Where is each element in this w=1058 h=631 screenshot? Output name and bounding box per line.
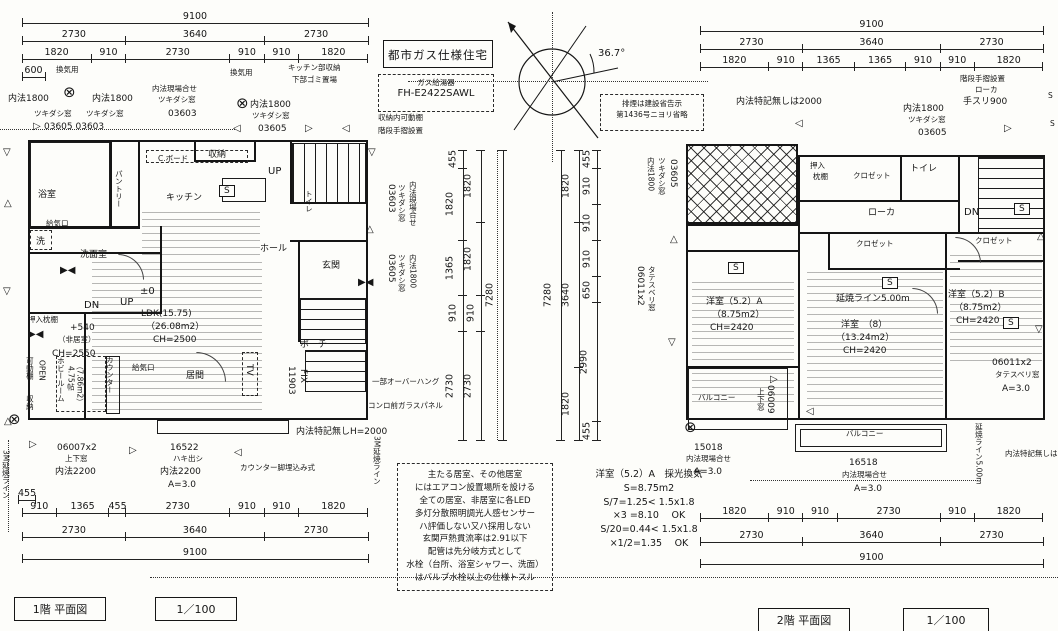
dim-value: 2730 — [700, 37, 803, 48]
general-note-line: 配管は先分岐方式として — [400, 546, 550, 559]
dim-value: 3640 — [560, 283, 571, 307]
plan-shape — [552, 12, 553, 162]
window-symbol-icon: ▽ — [3, 286, 11, 297]
plan-label: DN — [84, 300, 99, 311]
dimension-chain: 9100 — [700, 18, 1043, 32]
title-1f: 1階 平面図 — [14, 597, 106, 621]
window-symbol-icon: ▶◀ — [60, 265, 75, 276]
plan-label: クロゼット — [853, 172, 891, 180]
dim-value: 2730 — [126, 501, 230, 512]
plan-label: 浴室 — [38, 190, 56, 200]
dim-value: 1820 — [974, 506, 1043, 517]
dim-value: 910 — [769, 506, 803, 517]
bathroom — [30, 142, 110, 228]
dimension-chain: 273036402730 — [22, 28, 368, 42]
plan-label: ±0 — [140, 286, 155, 297]
dim-value: 910 — [447, 304, 458, 322]
gas-spec-box: 都市ガス仕様住宅 — [383, 40, 493, 68]
general-note-line: はバルブ水栓以上の仕様トスル — [400, 572, 550, 585]
window-symbol-icon: ▽ — [668, 337, 676, 348]
window-symbol-icon: ▽ — [1035, 324, 1043, 335]
dim-value: 2730 — [837, 506, 940, 517]
stairs-2f — [978, 157, 1044, 233]
dim-value: 2730 — [22, 29, 126, 40]
window-symbol-icon: △ — [4, 198, 12, 209]
plan-label: 洗面室 — [80, 250, 107, 260]
window-symbol-icon: △ — [670, 234, 678, 245]
shutter-box-label: S — [1003, 317, 1019, 329]
plan-label: 収納 — [208, 150, 226, 160]
plan-label: 下部ゴミ置場 — [292, 76, 337, 84]
dimension-chain: 9100 — [22, 10, 368, 24]
plan-label: 内法1800 — [646, 157, 654, 191]
plan-label: （8.75m2） — [712, 310, 765, 320]
dim-value: 910 — [581, 213, 592, 231]
dim-value: 1820 — [299, 501, 368, 512]
general-note-line: ハ評価しない又ハ採用しない — [400, 521, 550, 534]
plan-shape — [150, 577, 1058, 578]
plan-label: 06011x2 — [635, 266, 645, 306]
plan-label: 03605 — [668, 159, 678, 188]
dim-value: 2730 — [264, 29, 368, 40]
plan-shape — [28, 226, 140, 229]
plan-label: クロゼット — [856, 240, 894, 248]
plan-label: ハキ出シ — [173, 455, 203, 463]
plan-label: 内法2200 — [160, 467, 201, 477]
corner-marker-icon: ⊗ — [684, 420, 697, 435]
general-note-line: 多灯分散照明調光人感センサー — [400, 508, 550, 521]
shutter-box-label: S — [1014, 203, 1030, 215]
dim-value: 1820 — [444, 192, 455, 216]
window-symbol-icon: ▷ — [129, 445, 137, 456]
plan-label: 給気口 — [132, 364, 155, 372]
dim-value: 1365 — [854, 55, 905, 66]
dim-value: 910 — [465, 304, 476, 322]
plan-label: 手スリ900 — [963, 97, 1007, 107]
plan-label: 階段手摺設置 — [960, 75, 1005, 83]
plan-shape — [828, 234, 830, 270]
plan-label: パントリー — [114, 170, 122, 208]
window-symbol-icon: ▷ — [33, 121, 41, 132]
plan-label: 給気口 — [46, 220, 69, 228]
dimension-chain: 182091091027309101820 — [700, 505, 1043, 519]
plan-label: 内法現場合せ — [152, 85, 197, 93]
plan-label: CH=2420 — [710, 323, 754, 333]
plan-shape — [290, 240, 368, 242]
plan-label: 03605 — [918, 128, 947, 138]
window-symbol-icon: ▽ — [3, 147, 11, 158]
dim-value: 9100 — [22, 11, 368, 22]
dim-value: 3640 — [126, 525, 264, 536]
plan-label: 玄関 — [322, 261, 340, 271]
plan-label: （非居室） — [58, 336, 96, 344]
plan-shape — [138, 142, 140, 228]
scale-1f-text: 1／100 — [177, 603, 216, 616]
plan-label: 11903 — [286, 366, 296, 395]
shutter-box-label: S — [728, 262, 744, 274]
plan-label: 洋室（5.2）A — [706, 297, 762, 307]
title-2f-text: 2階 平面図 — [777, 614, 832, 627]
plan-label: S — [1050, 120, 1055, 128]
plan-label: 内法特記無しは — [1005, 450, 1058, 458]
plan-shape — [958, 155, 960, 234]
north-angle: 36.7° — [598, 48, 625, 59]
plan-label: 階段手摺設置 — [378, 127, 423, 135]
plan-label: 4.75帖 — [66, 366, 74, 390]
plan-label: C.ボード — [158, 155, 188, 163]
plan-label: +540 — [70, 323, 95, 333]
plan-label: （13.24m2） — [836, 333, 894, 343]
title-2f: 2階 平面図 — [758, 608, 850, 631]
plan-label: 押入 — [810, 162, 825, 170]
plan-label: 上下窓 — [756, 388, 764, 411]
dimension-chain: 4559109109106502990455 — [584, 150, 598, 440]
plan-label: （8.75m2） — [954, 303, 1007, 313]
plan-label: A=3.0 — [168, 480, 196, 490]
plan-label: 上下窓 — [65, 455, 88, 463]
plan-label: 可動棚 — [25, 357, 33, 380]
plan-label: カウンター脚埋込み式 — [240, 464, 315, 472]
roof-hatch — [686, 144, 798, 224]
dim-value: 1820 — [560, 174, 571, 198]
plan-label: 内法現場合せ — [842, 471, 887, 479]
plan-label: 洋室（5.2）B — [948, 290, 1005, 300]
plan-label: 03605 03603 — [44, 122, 104, 132]
plan-label: 03603 — [168, 109, 197, 119]
dim-value: 910 — [581, 177, 592, 195]
dim-value: 455 — [447, 150, 458, 168]
dimension-chain: 9100 — [22, 546, 368, 560]
plan-label: 03605 — [258, 124, 287, 134]
dim-value: 910 — [940, 55, 974, 66]
dining-floor — [142, 212, 260, 258]
plan-label: ローカ — [975, 86, 998, 94]
plan-label: ツキダシ窓 — [908, 116, 946, 124]
general-note-line: 全ての居室、非居室に各LED — [400, 495, 550, 508]
plan-label: 03603 — [386, 184, 396, 213]
dim-value: 7280 — [542, 283, 553, 307]
plan-label: 15018 — [694, 443, 723, 453]
dim-value: 1820 — [462, 247, 473, 271]
dimension-chain: 182018209102730 — [468, 150, 482, 440]
plan-label: FIX — [298, 369, 308, 383]
plan-label: ホール — [260, 244, 287, 254]
plan-label: （26.08m2） — [146, 322, 204, 332]
plan-label: A=3.0 — [1002, 384, 1030, 394]
plan-shape — [290, 142, 292, 204]
dim-value: 1365 — [803, 55, 854, 66]
dim-value: 910 — [264, 47, 299, 58]
window-symbol-icon: △ — [366, 224, 374, 235]
plan-label: 押入枕棚 — [28, 316, 58, 324]
dim-value: 1820 — [974, 55, 1043, 66]
window-symbol-icon: ◁ — [233, 123, 241, 134]
deck — [157, 420, 289, 434]
plan-label: 16522 — [170, 443, 199, 453]
dim-value: 910 — [230, 501, 265, 512]
plan-shape — [686, 366, 800, 368]
plan-label: CH=2420 — [956, 316, 1000, 326]
plan-shape — [254, 142, 256, 162]
window-symbol-icon: ▷ — [770, 374, 778, 385]
dim-value: 3640 — [803, 530, 940, 541]
dim-value: 3640 — [126, 29, 264, 40]
dim-value: 910 — [803, 506, 837, 517]
plan-label: 居間 — [186, 371, 204, 381]
plan-label: ツキダシ窓 — [34, 110, 72, 118]
dim-value: 650 — [581, 281, 592, 299]
north-compass-icon — [494, 12, 624, 152]
plan-label: 延焼ライン5.00m — [974, 423, 982, 485]
window-symbol-icon: ▶◀ — [358, 277, 373, 288]
plan-label: UP — [120, 297, 133, 308]
plan-label: 3M延焼ライン — [372, 436, 380, 485]
dim-value: 1820 — [299, 47, 368, 58]
floor-plan-sheet: 都市ガス仕様住宅 ガス給湯器 FH-E2422SAWL 排煙は建設省告示 第14… — [0, 0, 1058, 631]
heater-title: ガス給湯器 — [379, 77, 493, 88]
dim-value: 910 — [91, 47, 126, 58]
plan-label: キッチン — [166, 193, 202, 203]
dim-value: 910 — [230, 47, 265, 58]
window-symbol-icon: ◁ — [234, 447, 242, 458]
plan-label: UP — [268, 166, 281, 177]
plan-label: 洗 — [36, 237, 45, 247]
dim-value: 455 — [581, 150, 592, 168]
dim-value: 2730 — [462, 374, 473, 398]
plan-label: コンロ前ガラスパネル — [368, 402, 443, 410]
dim-value: 1820 — [22, 47, 91, 58]
dimension-chain: 273036402730 — [700, 36, 1043, 50]
window-symbol-icon: ▷ — [305, 123, 313, 134]
shutter-box-label: S — [219, 185, 235, 197]
plan-label: 一部オーバーハング — [372, 378, 439, 386]
plan-label: 内法1800 — [408, 254, 416, 288]
dim-value: 1820 — [700, 506, 769, 517]
plan-label: ローカ — [868, 208, 895, 218]
vent-fan-icon: ⊗ — [236, 96, 249, 111]
plan-shape — [750, 480, 978, 481]
dimension-chain: 600 — [22, 64, 45, 78]
plan-label: A=3.0 — [694, 467, 722, 477]
plan-shape — [290, 202, 368, 204]
window-symbol-icon: ▶◀ — [28, 329, 43, 340]
plan-label: 内法現場合せ — [686, 455, 731, 463]
plan-label: 換気用 — [230, 69, 253, 77]
plan-label: 06009 — [765, 385, 775, 414]
general-note-line: 主たる居室、その他居室 — [400, 469, 550, 482]
dim-value: 910 — [264, 501, 299, 512]
plan-label: 3M延焼ライン — [1, 450, 9, 499]
window-symbol-icon: ▷ — [1004, 123, 1012, 134]
plan-label: S — [1048, 92, 1053, 100]
general-notes-box: 主たる居室、その他居室にはエアコン設置場所を設ける全ての居室、非居室に各LED多… — [397, 463, 553, 591]
plan-label: 内法特記無しは2000 — [736, 97, 822, 107]
dim-value: 1820 — [560, 392, 571, 416]
plan-label: ツキダシ窓 — [86, 110, 124, 118]
dim-value: 1365 — [57, 501, 109, 512]
general-note-line: にはエアコン設置場所を設ける — [400, 482, 550, 495]
dimension-chain: 9100 — [700, 551, 1043, 565]
plan-label: CH=2420 — [843, 346, 887, 356]
plan-shape — [900, 157, 902, 202]
dim-value: 2730 — [22, 525, 126, 536]
plan-shape — [408, 81, 708, 82]
dim-value: 455 — [581, 422, 592, 440]
plan-label: ツキダシ窓 — [252, 112, 290, 120]
plan-label: DN — [964, 207, 979, 218]
plan-label: LDK(15.75) — [141, 309, 192, 319]
dim-value: 600 — [22, 65, 45, 76]
plan-label: ポーチ — [300, 340, 327, 350]
plan-label: キッチン部収納 — [288, 64, 341, 72]
window-symbol-icon: ◁ — [806, 406, 814, 417]
plan-label: タテスベリ窓 — [995, 371, 1039, 379]
dimension-chain: 7280 — [490, 150, 504, 440]
plan-label: 内法1800 — [903, 104, 944, 114]
window-symbol-icon: ◁ — [342, 123, 350, 134]
porch-steps — [305, 350, 366, 392]
dim-value: 9100 — [700, 552, 1043, 563]
plan-shape — [798, 200, 958, 202]
plan-shape — [945, 234, 947, 420]
plan-label: カウンター — [105, 356, 113, 394]
corner-marker-icon: ⊗ — [8, 412, 21, 427]
dimension-chain: 455 — [18, 487, 35, 501]
dim-value: 9100 — [22, 547, 368, 558]
dim-value: 7280 — [484, 283, 495, 307]
dim-value: 2990 — [578, 350, 589, 374]
plan-label: 延焼ライン5.00m — [836, 294, 910, 304]
dim-value: 1820 — [462, 174, 473, 198]
dim-value: 455 — [18, 488, 35, 499]
window-symbol-icon: △ — [1037, 231, 1045, 242]
plan-label: OPEN — [37, 360, 45, 381]
dimension-chain: 273036402730 — [22, 524, 368, 538]
dim-value: 910 — [581, 250, 592, 268]
dim-value: 2730 — [940, 37, 1043, 48]
entry-steps — [300, 298, 366, 344]
dim-value: 9100 — [700, 19, 1043, 30]
plan-label: 内法1800 — [250, 100, 291, 110]
plan-label: タテスベリ窓 — [647, 266, 655, 311]
dim-value: 2730 — [444, 374, 455, 398]
plan-label: バルコニー — [698, 394, 735, 402]
general-note-line: 玄関戸熱貫流率は2.91以下 — [400, 533, 550, 546]
window-symbol-icon: ▷ — [29, 439, 37, 450]
calc-line: S=8.75m2 — [556, 482, 742, 496]
plan-label: 06007x2 — [57, 443, 97, 453]
plan-label: 枕棚 — [813, 173, 828, 181]
plan-label: 洋室 （8） — [841, 320, 887, 330]
title-1f-text: 1階 平面図 — [33, 603, 88, 616]
plan-shape — [828, 268, 960, 270]
plan-label: ツキダシ窓 — [397, 254, 405, 292]
dimension-chain: 910136545527309109101820 — [22, 500, 368, 514]
plan-label: CH=2500 — [153, 335, 197, 345]
dim-value: 910 — [22, 501, 57, 512]
plan-label: トイレ — [910, 164, 937, 174]
scale-1f: 1／100 — [155, 597, 237, 621]
dimension-chain: 1820910136513659109101820 — [700, 54, 1043, 68]
plan-label: 収納 — [25, 395, 33, 410]
plan-label: 16518 — [849, 458, 878, 468]
dim-value: 455 — [109, 501, 126, 512]
plan-label: ツキダシ窓 — [657, 157, 665, 195]
dim-value: 2730 — [700, 530, 803, 541]
plan-label: バルコニー — [846, 430, 883, 438]
dim-value: 2730 — [126, 47, 230, 58]
plan-label: （7.86m2） — [75, 362, 83, 406]
plan-label: TV — [244, 364, 254, 376]
shutter-box-label: S — [882, 277, 898, 289]
plan-shape — [110, 142, 112, 228]
plan-label: ホビールーム — [56, 357, 64, 402]
heater-box: ガス給湯器 FH-E2422SAWL — [378, 74, 494, 112]
dim-value: 1365 — [444, 256, 455, 280]
plan-label: A=3.0 — [854, 484, 882, 494]
dim-value: 2730 — [940, 530, 1043, 541]
plan-label: 内法現場合せ — [408, 181, 416, 226]
plan-label: クロゼット — [975, 237, 1013, 245]
dimension-chain: 273036402730 — [700, 529, 1043, 543]
plan-label: ツキダシ窓 — [397, 184, 405, 222]
plan-label: 03605 — [386, 254, 396, 283]
vent-fan-icon: ⊗ — [63, 85, 76, 100]
scale-2f: 1／100 — [903, 608, 989, 631]
dim-value: 910 — [940, 506, 974, 517]
dim-value: 3640 — [803, 37, 940, 48]
dim-value: 910 — [769, 55, 803, 66]
scale-2f-text: 1／100 — [927, 614, 966, 627]
window-symbol-icon: ◁ — [795, 118, 803, 129]
plan-label: 収納内可動棚 — [378, 114, 423, 122]
plan-label: 換気用 — [56, 66, 79, 74]
plan-label: 内法1800 — [8, 94, 49, 104]
dimension-chain: 182036401820 — [566, 150, 580, 440]
plan-label: 内法2200 — [55, 467, 96, 477]
dim-value: 910 — [906, 55, 940, 66]
plan-label: トイレ — [304, 190, 312, 213]
window-symbol-icon: ▽ — [368, 147, 376, 158]
dim-value: 1820 — [700, 55, 769, 66]
plan-label: ツキダシ窓 — [158, 96, 196, 104]
plan-label: 内法1800 — [92, 94, 133, 104]
plan-shape — [686, 250, 800, 252]
gas-spec-text: 都市ガス仕様住宅 — [388, 48, 488, 62]
dim-value: 2730 — [264, 525, 368, 536]
general-note-line: 水栓（台所、浴室シャワー、洗面） — [400, 559, 550, 572]
plan-label: 06011x2 — [992, 358, 1032, 368]
heater-model: FH-E2422SAWL — [379, 88, 493, 99]
dimension-chain: 182091027309109101820 — [22, 46, 368, 60]
